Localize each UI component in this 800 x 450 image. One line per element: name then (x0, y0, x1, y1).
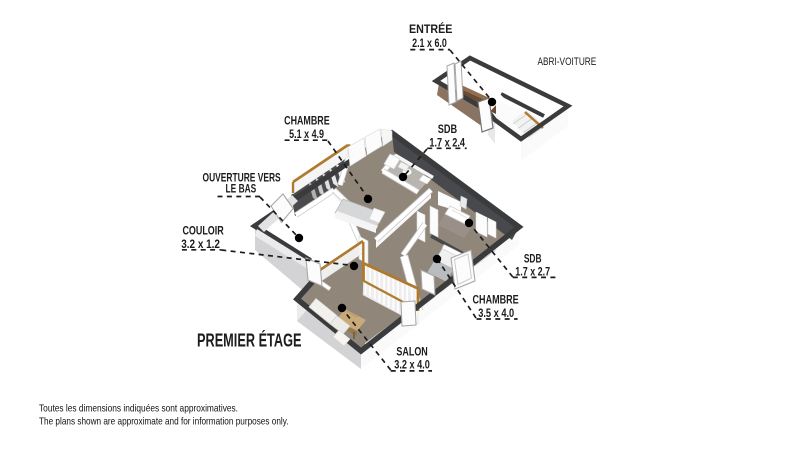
svg-text:5.1 x 4.9: 5.1 x 4.9 (289, 127, 324, 141)
svg-text:LE BAS: LE BAS (226, 182, 257, 196)
svg-text:1.7 x 2.7: 1.7 x 2.7 (515, 265, 550, 279)
svg-text:2.1 x 6.0: 2.1 x 6.0 (412, 36, 447, 50)
svg-text:The plans shown are approximat: The plans shown are approximate and for … (39, 416, 289, 427)
svg-text:CHAMBRE: CHAMBRE (473, 293, 519, 307)
svg-text:Toutes les dimensions indiquée: Toutes les dimensions indiquées sont app… (39, 403, 238, 414)
svg-text:SDB: SDB (438, 122, 457, 136)
svg-text:ABRI-VOITURE: ABRI-VOITURE (538, 56, 597, 68)
svg-text:SALON: SALON (396, 345, 427, 359)
svg-text:ENTRÉE: ENTRÉE (409, 22, 453, 36)
svg-text:3.2 x 4.0: 3.2 x 4.0 (394, 358, 430, 372)
svg-text:COULOIR: COULOIR (182, 223, 224, 237)
svg-text:CHAMBRE: CHAMBRE (284, 114, 330, 128)
svg-text:3.5 x 4.0: 3.5 x 4.0 (478, 306, 514, 320)
svg-text:PREMIER ÉTAGE: PREMIER ÉTAGE (197, 330, 302, 351)
